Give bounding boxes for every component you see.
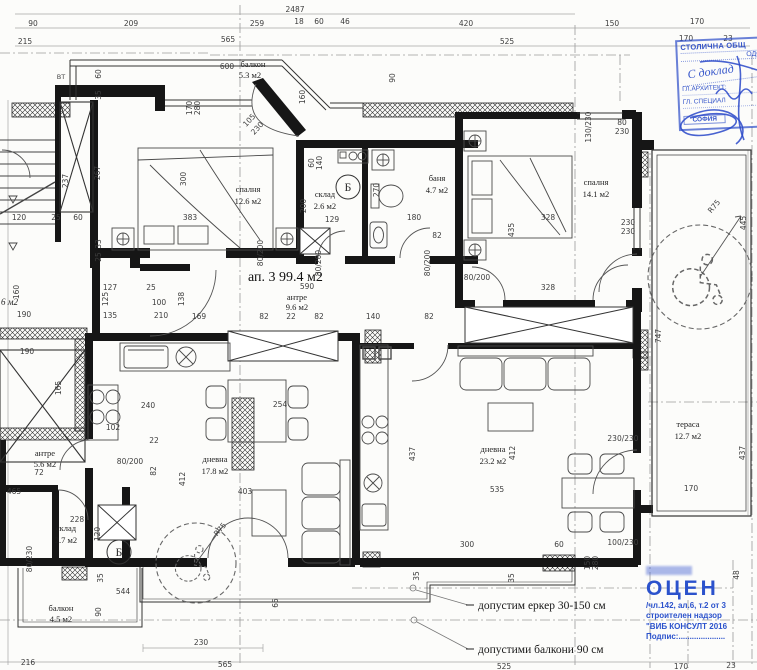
dimension-label: R75	[706, 198, 723, 215]
dimension-label: 46	[340, 17, 350, 26]
dimension-label: 280	[193, 101, 202, 116]
dimension-label: 565	[218, 660, 233, 669]
room-area-bathroom: 4.7 м2	[426, 185, 448, 195]
assessment-stamp: ОЦЕН /чл.142, ал.6, т.2 от 3 строителен …	[646, 566, 757, 643]
stamp-law-ref: /чл.142, ал.6, т.2 от 3	[646, 601, 757, 611]
dimension-label: 80/200	[423, 250, 432, 277]
dining-table	[206, 380, 308, 442]
room-label-terrace: тераса	[676, 419, 699, 429]
dimension-label: 200	[299, 199, 308, 214]
dimension-label: 237	[61, 174, 70, 189]
dimension-label: 90	[28, 19, 38, 28]
dimension-label: 22	[286, 312, 296, 321]
room-area-bedroom-2: 14.1 м2	[583, 189, 610, 199]
dimension-label: 465	[7, 487, 22, 496]
dining-table	[562, 454, 634, 532]
dimension-label: 437	[738, 446, 747, 461]
dimension-label: 90	[94, 607, 103, 617]
dimension-label: 82	[259, 312, 269, 321]
dimension-label: 160	[12, 285, 21, 300]
dimension-label: 535	[490, 485, 505, 494]
dimension-label: 100	[152, 298, 167, 307]
room-area-living-1: 17.8 м2	[202, 466, 229, 476]
note-leaders	[410, 585, 474, 649]
dimension-label: 280	[591, 556, 600, 571]
room-area-living-2: 23.2 м2	[480, 456, 507, 466]
dimension-label: 300	[460, 540, 475, 549]
stamp-city: СОФИЯ	[683, 114, 726, 125]
dimension-label: 35	[412, 571, 421, 581]
dimension-label: 140	[366, 312, 381, 321]
dimension-label: 82	[149, 466, 158, 476]
dimension-label: 25	[94, 252, 103, 262]
dimension-label: 65	[271, 598, 280, 608]
bed	[464, 131, 572, 260]
floor-plan-canvas: Б Б балкон 5.3 м2 спалня 12.6 м2 склад 2…	[0, 0, 757, 670]
room-label-storage-1: склад	[315, 189, 336, 199]
dimension-label: 165	[54, 381, 63, 396]
dimension-label: 403	[238, 487, 253, 496]
dimension-label: 100/230	[607, 538, 638, 547]
dimension-label: 525	[500, 37, 515, 46]
room-label-hall-2: антре	[35, 448, 55, 458]
room-area-bedroom-1: 12.6 м2	[235, 196, 262, 206]
dimension-label: 23	[726, 661, 736, 670]
dimension-label: 125	[101, 292, 110, 307]
dimension-label: 230/230	[607, 434, 638, 443]
dimension-label: 190	[20, 347, 35, 356]
dimension-label: 35	[507, 573, 516, 583]
dimension-label: 267	[93, 166, 102, 181]
dimension-label: 80/200	[464, 273, 491, 282]
dimension-label: 209	[124, 19, 139, 28]
dimension-label: 60	[73, 213, 83, 222]
dimension-label: 230	[621, 227, 636, 236]
dimension-label: 90	[388, 73, 397, 83]
boiler-icon	[372, 150, 394, 170]
dimension-label: 544	[116, 587, 131, 596]
dimension-label: 169	[192, 312, 207, 321]
sofa	[252, 460, 350, 565]
dimension-label: 254	[273, 400, 288, 409]
dimension-label: 230	[194, 638, 209, 647]
room-label-storage-2: склад	[56, 523, 77, 533]
dimension-label: 190	[17, 310, 32, 319]
dimension-label: 80	[617, 118, 627, 127]
wheelchair-icon	[648, 216, 752, 329]
stamp-supervision: строителен надзор	[646, 611, 757, 621]
room-label-living-2: дневна	[481, 444, 506, 454]
dimension-label: 82	[424, 312, 434, 321]
dimension-label: 82	[432, 231, 442, 240]
municipality-stamp: СТОЛИЧНА ОБЩ ОДО С доклад ГЛ.АРХИТЕКТ: Г…	[675, 36, 757, 131]
dimension-label: 80/200	[314, 250, 323, 277]
dimension-label: 170	[684, 484, 699, 493]
shaft-label: Б	[116, 545, 123, 559]
room-area-storage-2: 2.7 м2	[55, 535, 77, 545]
note-bay-window: допустим еркер 30-150 см	[478, 600, 606, 612]
dimension-label: 80/230	[25, 546, 34, 573]
dimension-label: 60	[314, 17, 324, 26]
dimension-label: 412	[178, 472, 187, 487]
note-balconies: допустими балкони 90 см	[478, 644, 604, 656]
dimension-label: 328	[541, 213, 556, 222]
dimension-label: 33	[94, 239, 103, 249]
dimension-label: 127	[103, 283, 118, 292]
sofa	[458, 346, 593, 431]
dimension-label: 170	[674, 662, 689, 670]
room-label-bedroom-1: спалня	[236, 184, 261, 194]
dimension-label: 230	[621, 218, 636, 227]
dimension-label: 420	[459, 19, 474, 28]
dimension-label: 22	[149, 436, 159, 445]
dimension-label: 215	[18, 37, 33, 46]
room-label-hall: антре	[287, 292, 307, 302]
vt-label: ВТ	[57, 73, 65, 81]
dimension-label: 102	[106, 423, 121, 432]
room-label-bedroom-2: спалня	[584, 177, 609, 187]
room-area-balcony-bottom: 4.5 м2	[50, 614, 72, 624]
room-area-hall: 9.6 м2	[286, 302, 308, 312]
dimension-label: R75	[212, 521, 229, 538]
dimension-label: 18	[294, 17, 304, 26]
stamp-company: "ВИБ КОНСУЛТ 2016	[646, 622, 757, 632]
dimension-label: 412	[508, 446, 517, 461]
kitchen-counter	[360, 345, 391, 530]
stamp-smudge	[646, 566, 692, 575]
dimension-label: 35	[94, 90, 103, 100]
dimension-label: 300	[179, 172, 188, 187]
dimension-label: 2487	[285, 5, 304, 14]
dimension-label: 437	[408, 447, 417, 462]
dimension-label: 565	[221, 35, 236, 44]
dimension-label: 328	[541, 283, 556, 292]
dimension-label: 129	[325, 215, 340, 224]
dimension-label: 445	[739, 216, 748, 231]
room-label-balcony-bottom: балкон	[49, 603, 74, 613]
dimension-label: 180	[407, 213, 422, 222]
room-label-balcony-top: балкон	[241, 59, 266, 69]
wardrobe	[98, 228, 633, 540]
dimension-label: 25	[51, 213, 61, 222]
sink-icon	[370, 222, 387, 248]
room-area-terrace: 12.7 м2	[675, 431, 702, 441]
dimension-label: 259	[250, 19, 265, 28]
dimension-label: 383	[183, 213, 198, 222]
dimension-label: 25	[146, 283, 156, 292]
dimension-label: 72	[34, 468, 44, 477]
dimension-label: 60	[94, 69, 103, 79]
room-label-bathroom: баня	[429, 173, 446, 183]
dimension-label: 270	[372, 183, 381, 198]
dimension-label: 130/230	[584, 111, 593, 142]
stamp-signature-line: Подпис:.....................	[646, 632, 757, 642]
dimension-label: 135	[103, 311, 118, 320]
dimension-label: 160	[298, 90, 307, 105]
dimension-label: 230	[615, 127, 630, 136]
bed	[112, 148, 298, 250]
dimension-label: 240	[141, 401, 156, 410]
dimension-label: 80/200	[117, 457, 144, 466]
room-area-storage-1: 2.6 м2	[314, 201, 336, 211]
dimension-label: 435	[507, 223, 516, 238]
dimension-label: 228	[70, 515, 85, 524]
dimension-label: 170	[690, 17, 705, 26]
dimension-label: 216	[21, 658, 36, 667]
dimension-label: 138	[177, 292, 186, 307]
dimension-label: 140	[315, 156, 324, 171]
dimension-label: 525	[497, 662, 512, 670]
dimension-label: 80/200	[256, 240, 265, 267]
dimension-label: 35	[96, 573, 105, 583]
shaft-label: Б	[345, 180, 352, 194]
room-label-living-1: дневна	[203, 454, 228, 464]
dimension-label: 120	[93, 527, 102, 542]
room-area-balcony-top: 5.3 м2	[239, 70, 261, 80]
dimension-label: 82	[314, 312, 324, 321]
dimension-label: 150	[605, 19, 620, 28]
stamp-title: ОЦЕН	[646, 578, 757, 599]
dimension-label: 590	[300, 282, 315, 291]
dimension-label: 210	[154, 311, 169, 320]
dimension-label: 747	[654, 329, 663, 344]
dimension-label: 60	[554, 540, 564, 549]
dimension-label: 600	[220, 62, 235, 71]
dimension-label: 120	[12, 213, 27, 222]
